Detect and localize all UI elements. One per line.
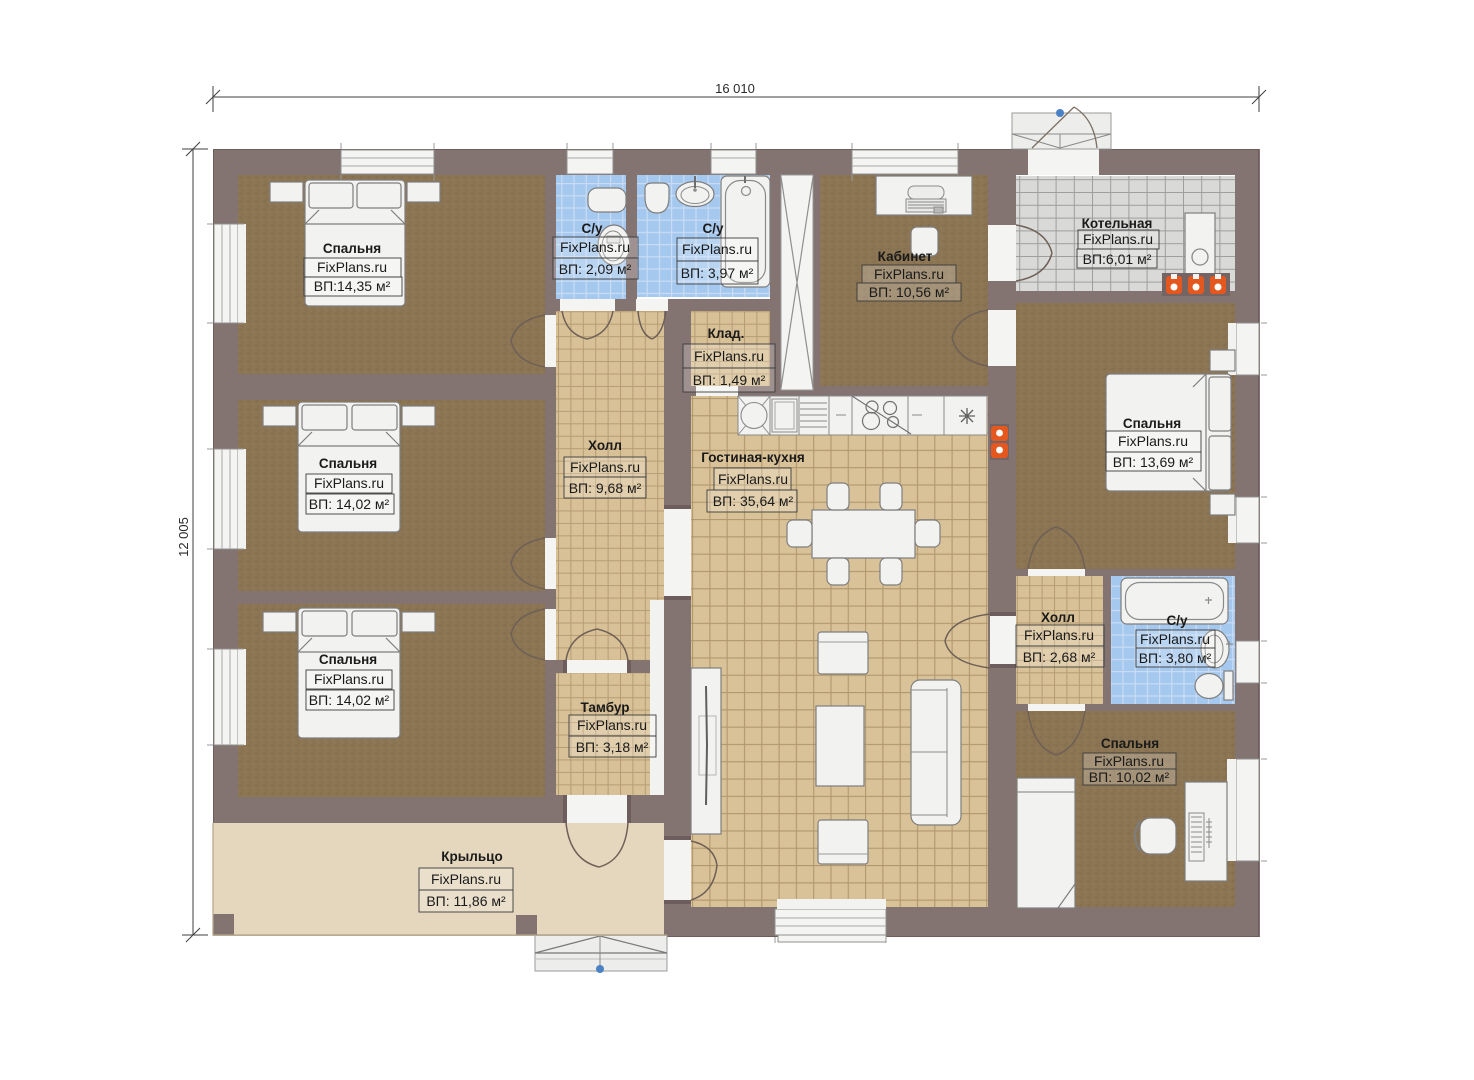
- svg-text:Котельная: Котельная: [1082, 216, 1153, 231]
- svg-text:FixPlans.ru: FixPlans.ru: [1024, 627, 1094, 643]
- svg-text:FixPlans.ru: FixPlans.ru: [314, 475, 384, 491]
- svg-text:16 010: 16 010: [715, 81, 755, 96]
- svg-text:Холл: Холл: [588, 438, 622, 453]
- svg-text:FixPlans.ru: FixPlans.ru: [682, 241, 752, 257]
- svg-text:ВП: 1,49 м²: ВП: 1,49 м²: [693, 372, 766, 388]
- svg-text:Крыльцо: Крыльцо: [441, 849, 502, 864]
- svg-text:Гостиная-кухня: Гостиная-кухня: [701, 450, 804, 465]
- svg-text:ВП: 10,02 м²: ВП: 10,02 м²: [1089, 769, 1170, 785]
- svg-text:FixPlans.ru: FixPlans.ru: [431, 871, 501, 887]
- svg-text:С/у: С/у: [702, 221, 724, 236]
- svg-text:ВП: 14,02 м²: ВП: 14,02 м²: [309, 496, 390, 512]
- svg-text:Спальня: Спальня: [323, 241, 381, 256]
- svg-text:ВП: 11,86 м²: ВП: 11,86 м²: [426, 893, 506, 909]
- svg-text:ВП: 9,68 м²: ВП: 9,68 м²: [569, 480, 642, 496]
- svg-text:FixPlans.ru: FixPlans.ru: [317, 259, 387, 275]
- svg-text:Спальня: Спальня: [319, 456, 377, 471]
- svg-text:С/у: С/у: [581, 221, 603, 236]
- svg-text:FixPlans.ru: FixPlans.ru: [874, 266, 944, 282]
- svg-text:FixPlans.ru: FixPlans.ru: [314, 671, 384, 687]
- svg-text:ВП: 14,02 м²: ВП: 14,02 м²: [309, 692, 390, 708]
- svg-text:Кабинет: Кабинет: [878, 249, 933, 264]
- svg-text:ВП: 3,80 м²: ВП: 3,80 м²: [1139, 650, 1212, 666]
- svg-text:FixPlans.ru: FixPlans.ru: [570, 459, 640, 475]
- svg-text:ВП: 10,56 м²: ВП: 10,56 м²: [869, 284, 950, 300]
- svg-text:ВП: 3,18 м²: ВП: 3,18 м²: [576, 739, 649, 755]
- svg-text:Клад.: Клад.: [708, 326, 745, 341]
- svg-text:FixPlans.ru: FixPlans.ru: [718, 471, 788, 487]
- svg-text:FixPlans.ru: FixPlans.ru: [1094, 753, 1164, 769]
- svg-text:С/у: С/у: [1166, 613, 1188, 628]
- svg-text:Тамбур: Тамбур: [581, 700, 630, 715]
- svg-text:ВП:6,01 м²: ВП:6,01 м²: [1083, 251, 1152, 267]
- svg-text:FixPlans.ru: FixPlans.ru: [560, 239, 630, 255]
- svg-text:FixPlans.ru: FixPlans.ru: [694, 348, 764, 364]
- svg-text:Холл: Холл: [1041, 610, 1075, 625]
- svg-text:FixPlans.ru: FixPlans.ru: [1140, 631, 1210, 647]
- svg-text:Спальня: Спальня: [1123, 416, 1181, 431]
- svg-text:Спальня: Спальня: [319, 652, 377, 667]
- svg-text:FixPlans.ru: FixPlans.ru: [577, 717, 647, 733]
- svg-text:ВП: 2,09 м²: ВП: 2,09 м²: [559, 261, 632, 277]
- svg-text:12 005: 12 005: [176, 517, 191, 557]
- svg-text:ВП:14,35 м²: ВП:14,35 м²: [314, 278, 391, 294]
- svg-text:Спальня: Спальня: [1101, 736, 1159, 751]
- svg-text:FixPlans.ru: FixPlans.ru: [1118, 433, 1188, 449]
- svg-text:ВП: 13,69 м²: ВП: 13,69 м²: [1113, 454, 1194, 470]
- svg-text:ВП: 35,64 м²: ВП: 35,64 м²: [713, 493, 794, 509]
- svg-text:FixPlans.ru: FixPlans.ru: [1083, 231, 1153, 247]
- svg-text:ВП: 3,97 м²: ВП: 3,97 м²: [681, 265, 754, 281]
- svg-text:ВП: 2,68 м²: ВП: 2,68 м²: [1023, 649, 1096, 665]
